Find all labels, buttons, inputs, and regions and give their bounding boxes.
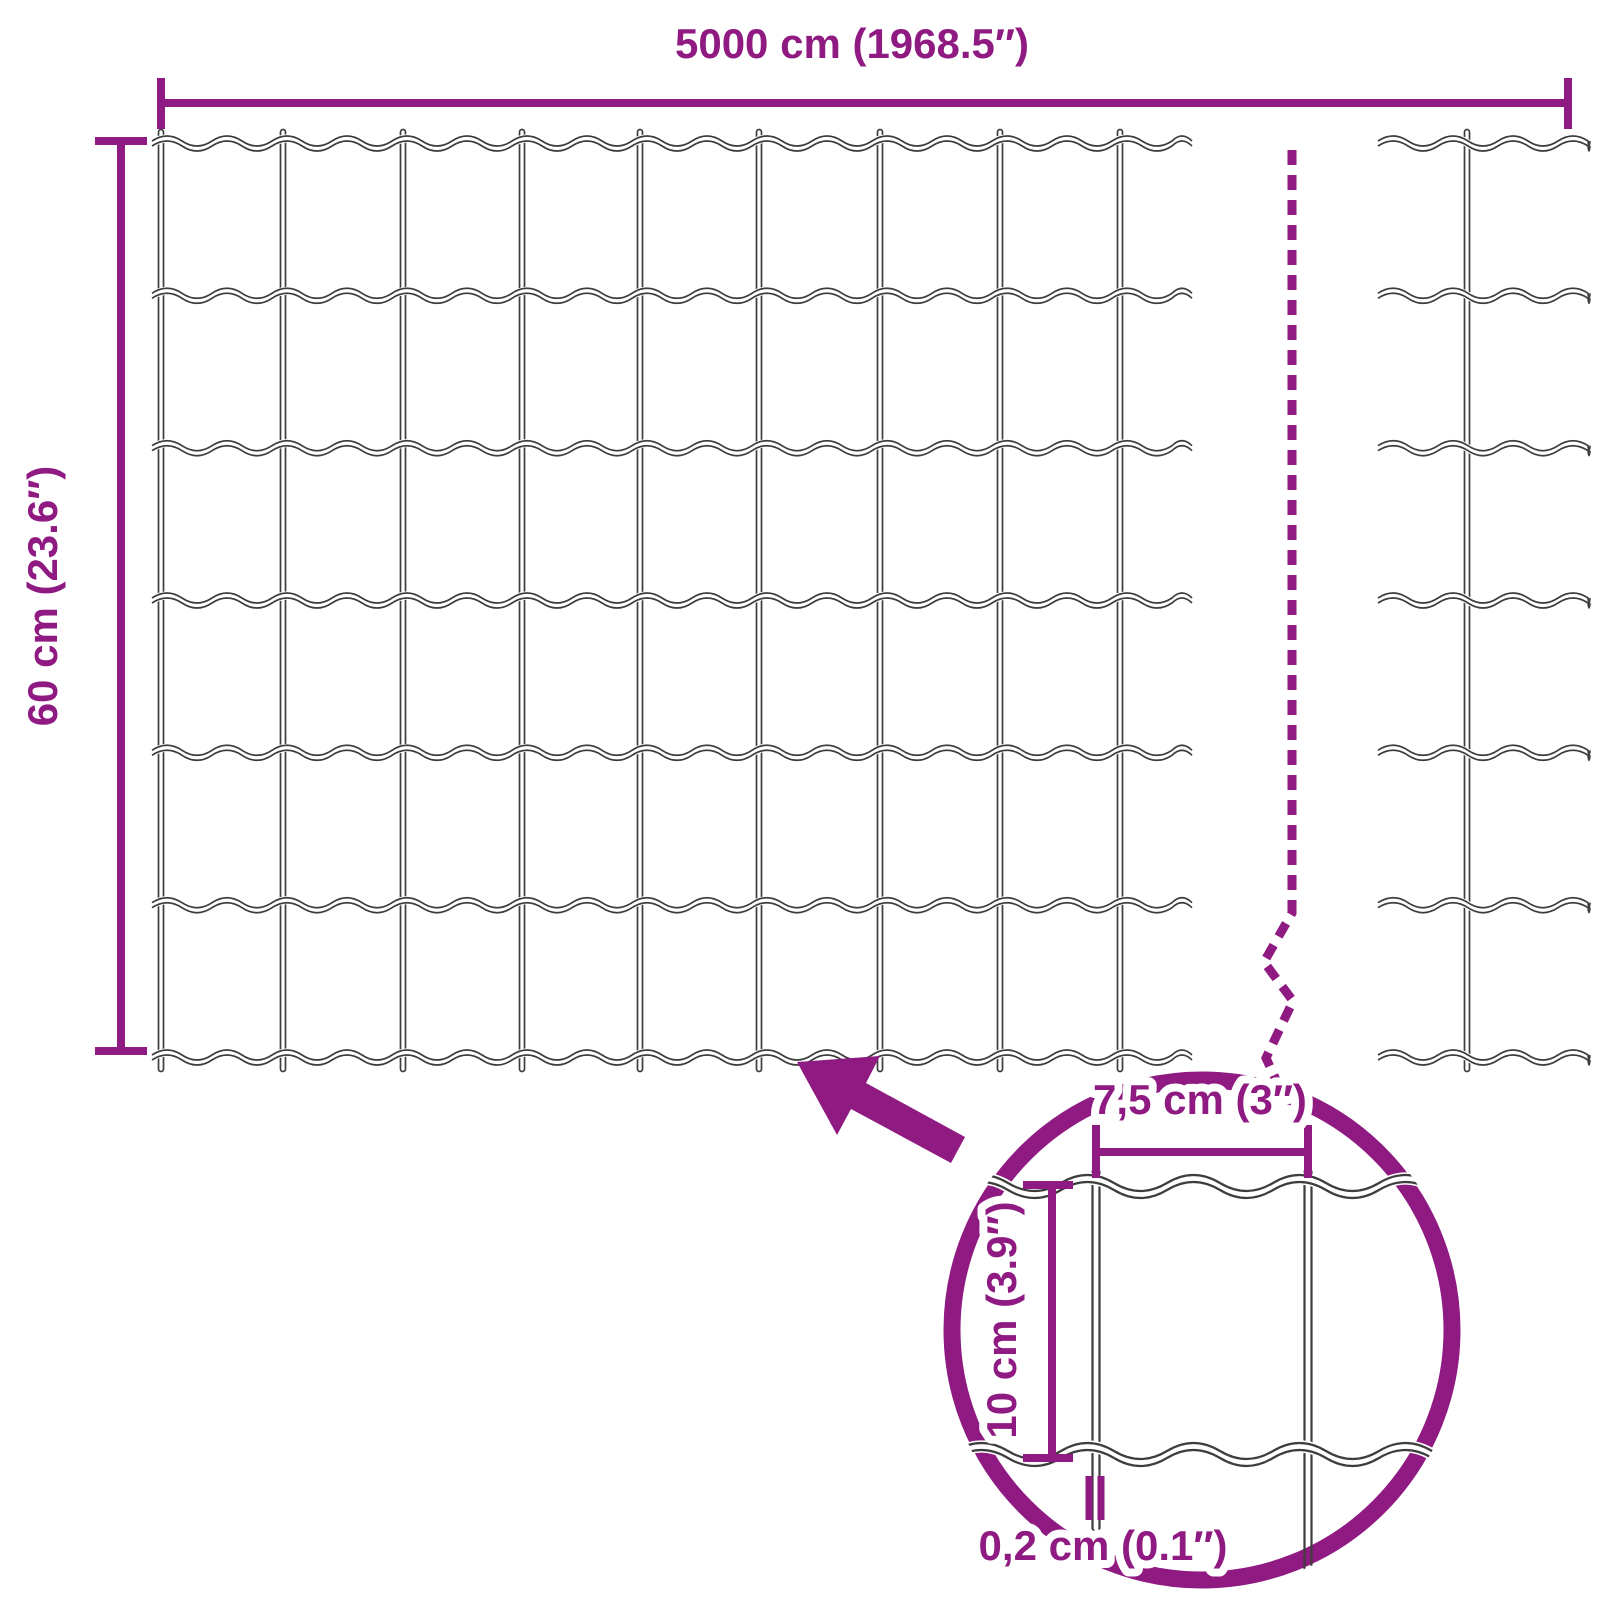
- roll-height-label: 60 cm (23.6″): [19, 466, 66, 727]
- mesh-panel-fragment: [1378, 130, 1590, 1072]
- vertical-wire: [401, 130, 406, 1072]
- vertical-wire: [281, 130, 286, 1072]
- break-line: [1264, 150, 1293, 1082]
- width-dimension: 5000 cm (1968.5″): [161, 20, 1568, 129]
- diagram-canvas: 5000 cm (1968.5″) 60 cm (23.6″) 7,5 cm (…: [0, 0, 1600, 1600]
- mesh-panel: [152, 130, 1192, 1072]
- fence-dimension-diagram: 5000 cm (1968.5″) 60 cm (23.6″) 7,5 cm (…: [0, 0, 1600, 1600]
- roll-length-label: 5000 cm (1968.5″): [675, 20, 1029, 67]
- mesh-width-label: 7,5 cm (3″): [1093, 1076, 1307, 1123]
- vertical-wire: [1305, 1169, 1312, 1579]
- height-dimension: 60 cm (23.6″): [19, 141, 147, 1051]
- mesh-height-label: 10 cm (3.9″): [978, 1201, 1025, 1438]
- wire-thickness-label: 0,2 cm (0.1″): [979, 1522, 1228, 1569]
